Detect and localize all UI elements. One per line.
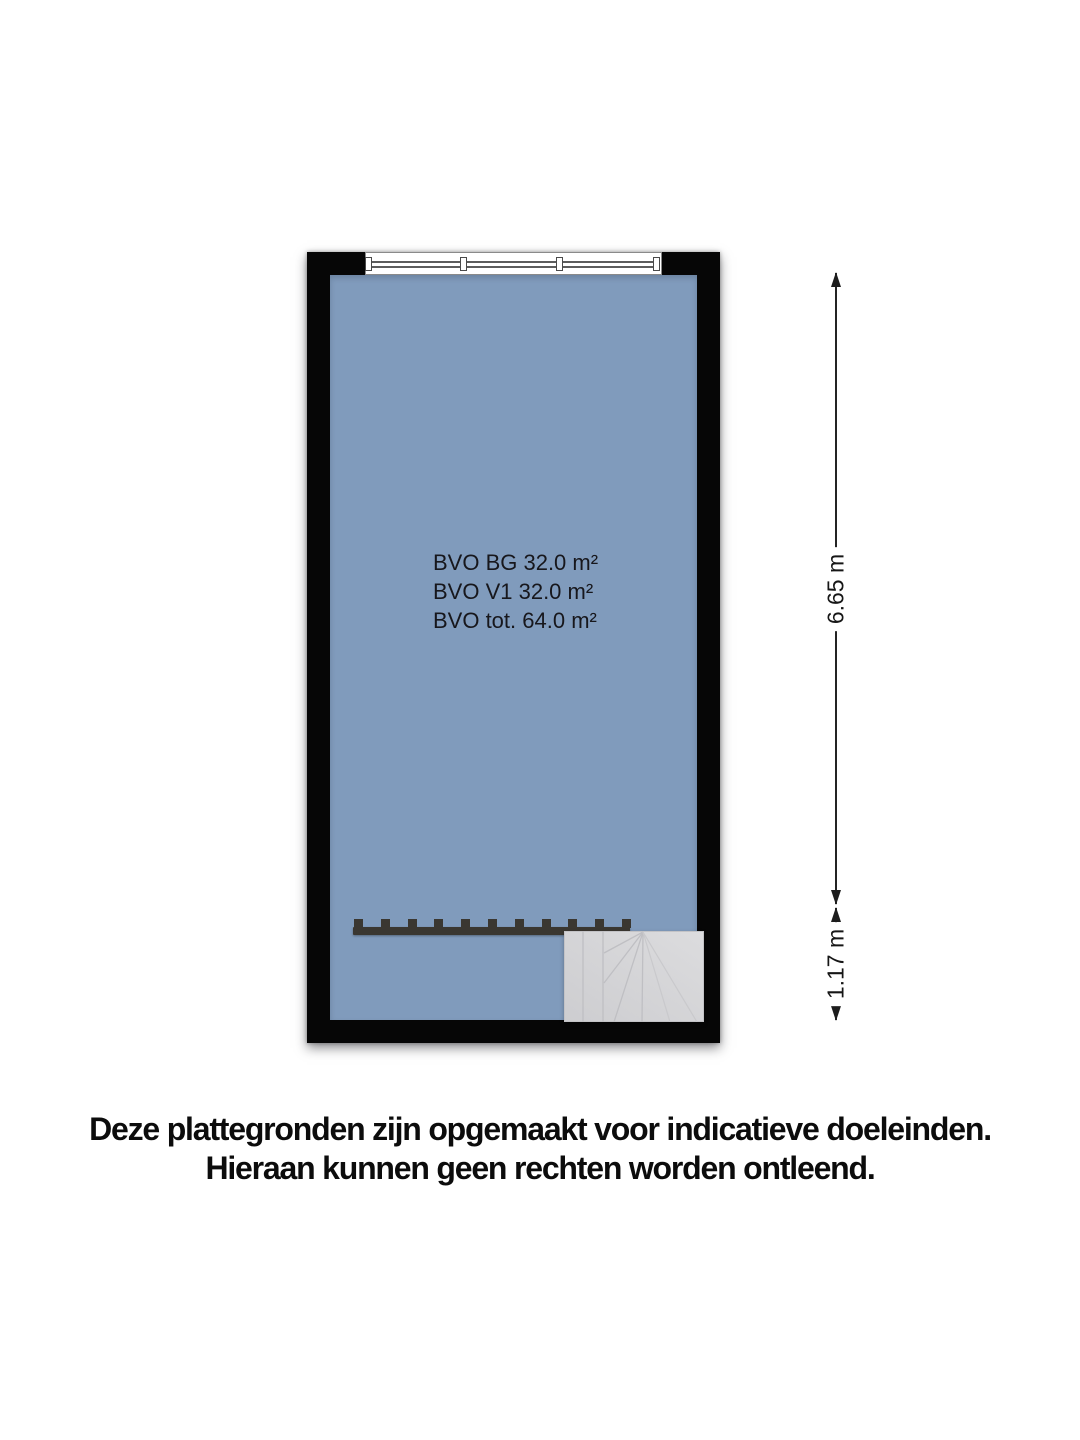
- dimension-stair-zone: 1.17 m: [828, 908, 844, 1020]
- window-mullion: [365, 257, 372, 271]
- disclaimer: Deze plattegronden zijn opgemaakt voor i…: [0, 1110, 1080, 1188]
- room-area: [330, 275, 697, 1020]
- room-label-bvo-tot: BVO tot. 64.0 m²: [433, 606, 598, 635]
- railing-posts: [354, 919, 631, 928]
- staircase: [564, 931, 704, 1022]
- disclaimer-line-2: Hieraan kunnen geen rechten worden ontle…: [0, 1149, 1080, 1188]
- arrow-up-icon: [831, 272, 841, 287]
- dimension-interior-height: 6.65 m: [828, 273, 844, 904]
- room-label-bvo-v1: BVO V1 32.0 m²: [433, 577, 598, 606]
- window-glass: [368, 261, 659, 268]
- window-mullion: [460, 257, 467, 271]
- window-mullion: [653, 257, 660, 271]
- arrow-down-icon: [831, 1006, 841, 1021]
- window-mullion: [556, 257, 563, 271]
- dimension-label: 6.65 m: [821, 546, 852, 630]
- disclaimer-line-1: Deze plattegronden zijn opgemaakt voor i…: [0, 1110, 1080, 1149]
- arrow-down-icon: [831, 890, 841, 905]
- room-area-labels: BVO BG 32.0 m² BVO V1 32.0 m² BVO tot. 6…: [433, 548, 598, 635]
- window: [365, 252, 662, 275]
- floor-plan: [307, 252, 720, 1043]
- arrow-up-icon: [831, 907, 841, 922]
- floorplan-page: BVO BG 32.0 m² BVO V1 32.0 m² BVO tot. 6…: [0, 0, 1080, 1440]
- room-label-bvo-bg: BVO BG 32.0 m²: [433, 548, 598, 577]
- dimension-label: 1.17 m: [821, 922, 852, 1006]
